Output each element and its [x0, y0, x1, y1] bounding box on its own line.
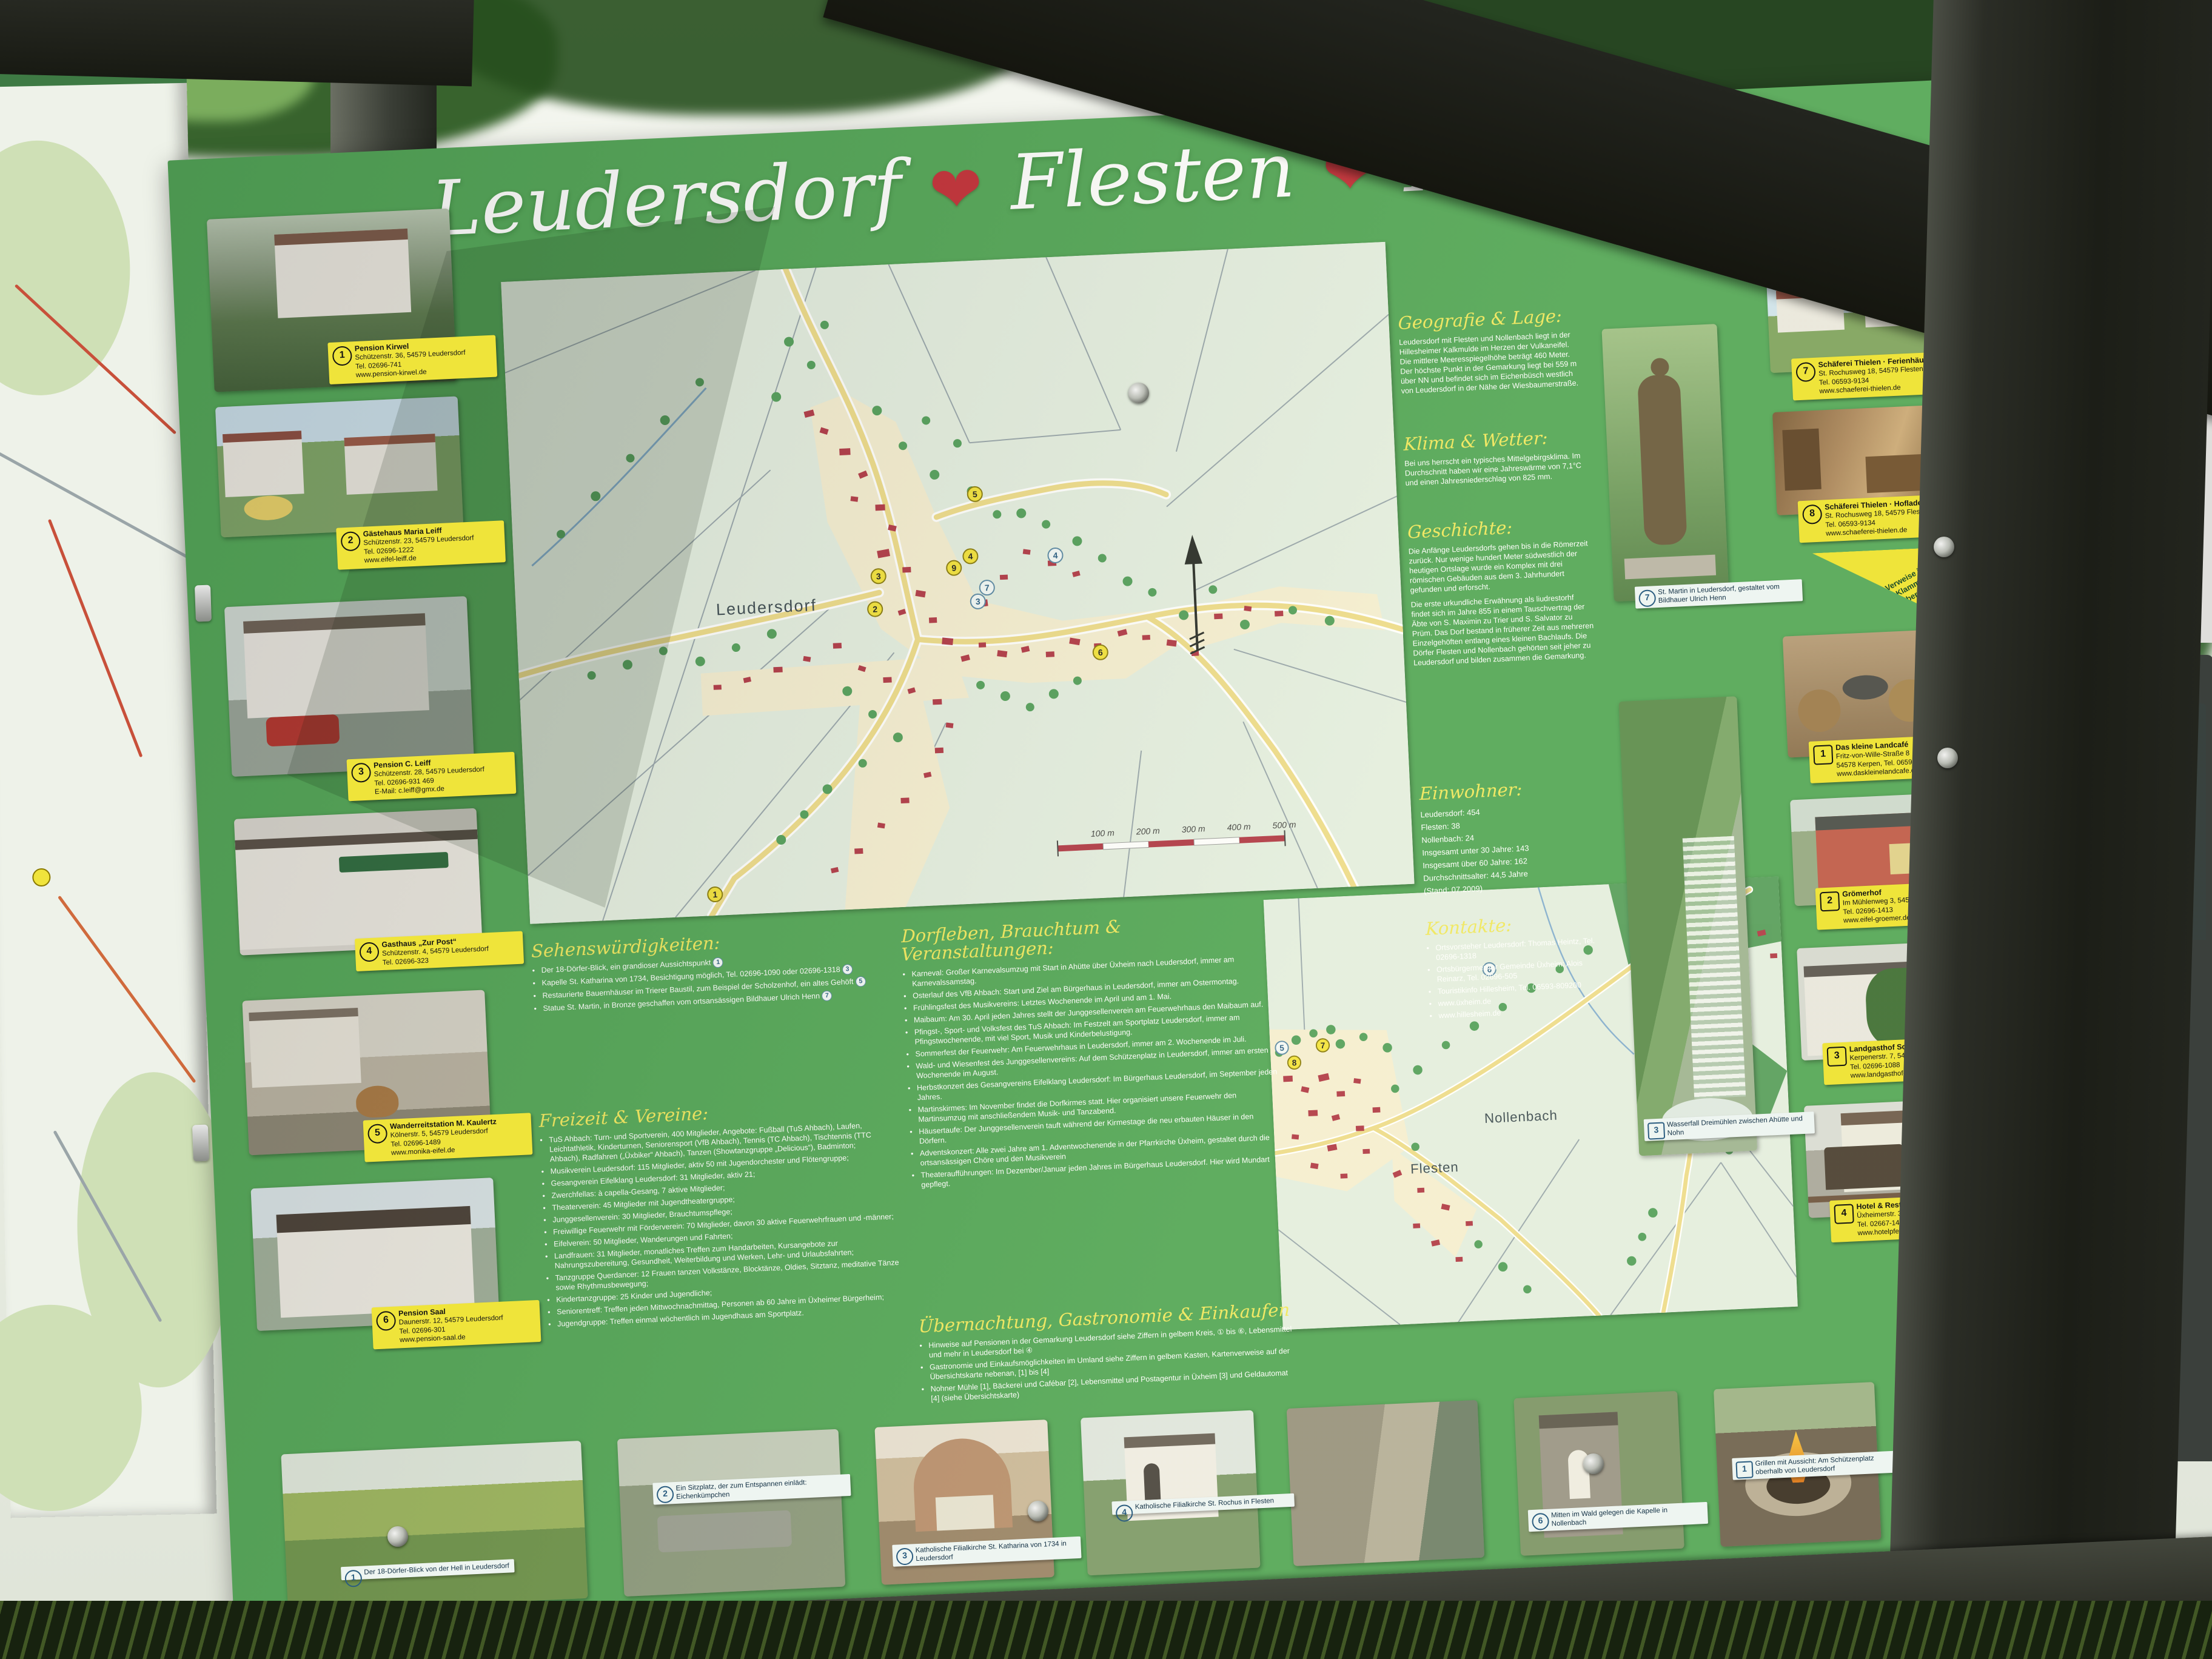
- house-shape: [274, 229, 411, 318]
- svg-text:300 m: 300 m: [1181, 823, 1205, 834]
- photo-gasthaus-zur-post: [234, 808, 483, 956]
- section-freizeit-vereine: Freizeit & Vereine: TuS Ahbach: Turn- un…: [538, 1096, 903, 1332]
- hedge-grass: [0, 1601, 2212, 1659]
- caption-number: 2: [656, 1486, 674, 1503]
- listing-number: 4: [359, 942, 379, 962]
- svg-text:400 m: 400 m: [1227, 822, 1251, 833]
- listing-label-6: 6 Pension Saal Daunerstr. 12, 54579 Leud…: [372, 1300, 541, 1349]
- statue-base-shape: [1624, 555, 1716, 580]
- section-dorfleben: Dorfleben, Brauchtum & Veranstaltungen: …: [900, 910, 1285, 1192]
- photo-wasserfall: [1618, 696, 1757, 1156]
- map-marker-yellow: 5: [967, 486, 982, 501]
- bolt: [1028, 1501, 1048, 1521]
- listing-label-3: 3 Pension C. Leiff Schützenstr. 28, 5457…: [347, 752, 517, 801]
- info-board: Leudersdorf ❤ Flesten ❤ Nollenbach: [167, 78, 2063, 1632]
- map-marker-yellow: 9: [947, 560, 962, 575]
- svg-text:5: 5: [973, 489, 978, 499]
- svg-text:7: 7: [985, 583, 990, 592]
- listing-label-1: 1 Pension Kirwel Schützenstr. 36, 54579 …: [327, 335, 497, 384]
- altar-shape: [936, 1495, 994, 1530]
- listing-number: 1: [1813, 745, 1833, 765]
- caption-text: Ein Sitzplatz, der zum Entspannen einläd…: [675, 1479, 806, 1501]
- svg-text:6: 6: [1098, 648, 1104, 657]
- caption-number: 7: [1638, 589, 1656, 607]
- trough-shape: [657, 1510, 792, 1552]
- map-marker-yellow: 4: [963, 549, 978, 564]
- section-title: Einwohner:: [1419, 777, 1601, 803]
- listing-number: 2: [1820, 891, 1840, 911]
- bolt: [1583, 1453, 1604, 1474]
- section-einwohner: Einwohner: Leudersdorf: 454 Flesten: 38 …: [1419, 777, 1606, 898]
- heart-icon: ❤: [928, 152, 984, 228]
- map-marker-blue: 4: [1048, 548, 1063, 563]
- caption-text: Katholische Filialkirche St. Katharina v…: [915, 1540, 1067, 1563]
- section-title: Geschichte:: [1407, 515, 1589, 541]
- listing-label-5: 5 Wanderreitstation M. Kaulertz Kölnerst…: [363, 1113, 533, 1162]
- svg-text:2: 2: [873, 604, 878, 614]
- panel-map-road-red: [48, 519, 143, 757]
- inn-building-shape: [235, 829, 482, 950]
- panel-map-road-gray: [0, 448, 194, 561]
- bolt: [387, 1526, 408, 1547]
- title-word-leudersdorf: Leudersdorf: [429, 144, 903, 253]
- map-marker-yellow: 6: [1093, 645, 1108, 660]
- caption-number: 6: [1532, 1513, 1549, 1530]
- garden-table-shape: [244, 495, 293, 521]
- red-car-shape: [266, 714, 340, 746]
- svg-text:5: 5: [1279, 1044, 1285, 1053]
- caption-text: St. Martin in Leudersdorf, gestaltet vom…: [1658, 583, 1780, 605]
- caption-text: Grillen mit Aussicht: Am Schützenplatz o…: [1755, 1455, 1874, 1476]
- listing-label-4: 4 Gasthaus „Zur Post“ Schützenstr. 4, 54…: [355, 931, 524, 972]
- listing-number: 3: [351, 763, 371, 783]
- section-body: Bei uns herrscht ein typisches Mittelgeb…: [1404, 451, 1587, 489]
- section-body: Leudersdorf mit Flesten und Nollenbach l…: [1399, 330, 1583, 397]
- listing-number: 2: [341, 531, 361, 551]
- listing-number: 8: [1802, 504, 1822, 525]
- map-marker-yellow: 1: [708, 887, 723, 902]
- panel-map-green-area: [0, 139, 133, 397]
- frame-post-right: [1886, 0, 2212, 1659]
- counter-shape: [1865, 454, 1925, 493]
- wicker-chair-shape: [1797, 689, 1842, 733]
- table-shape: [1842, 674, 1889, 700]
- svg-text:3: 3: [876, 571, 881, 581]
- svg-text:7: 7: [1320, 1041, 1325, 1050]
- section-geografie: Geografie & Lage: Leudersdorf mit Fleste…: [1398, 306, 1583, 401]
- map-marker-blue: 3: [970, 594, 985, 609]
- section-sehenswuerdigkeiten: Sehenswürdigkeiten: Der 18-Dörfer-Blick,…: [531, 926, 889, 1017]
- section-body: Die Anfänge Leudersdorfs gehen bis in di…: [1408, 538, 1592, 595]
- svg-text:4: 4: [968, 551, 973, 561]
- statue-shape: [1637, 374, 1687, 546]
- svg-text:9: 9: [951, 563, 957, 572]
- panel-map-marker: [32, 868, 51, 887]
- section-klima: Klima & Wetter: Bei uns herrscht ein typ…: [1403, 427, 1587, 493]
- map-ref-badge: 3: [842, 964, 853, 975]
- house-shape: [243, 613, 429, 718]
- bolt: [1128, 383, 1149, 403]
- listing-number: 3: [1827, 1047, 1847, 1067]
- section-uebernachtung: Übernachtung, Gastronomie & Einkaufen Hi…: [918, 1301, 1295, 1407]
- statue-head-shape: [1651, 358, 1669, 377]
- listing-number: 5: [367, 1124, 387, 1144]
- listing-number: 7: [1795, 362, 1815, 382]
- svg-text:500 m: 500 m: [1272, 819, 1296, 830]
- title-word-flesten: Flesten: [1008, 127, 1297, 227]
- section-title: Geografie & Lage:: [1398, 306, 1580, 332]
- house-shape: [223, 431, 304, 497]
- photo-pension-c-leiff: [224, 596, 474, 777]
- caption-number: 1: [1735, 1461, 1753, 1478]
- pavilion-shape: [1824, 1144, 1905, 1190]
- village-map: Leudersdorf 2 3 9 4 5 1 6 7 3 4: [501, 242, 1415, 924]
- section-geschichte: Geschichte: Die Anfänge Leudersdorfs geh…: [1407, 515, 1596, 673]
- map-marker-yellow: 2: [868, 602, 883, 617]
- map-marker-blue: 7: [979, 580, 994, 595]
- caption-text: Mitten im Wald gelegen die Kapelle in No…: [1551, 1507, 1667, 1528]
- photo-gaestehaus-leiff: [215, 396, 463, 537]
- svg-text:8: 8: [1292, 1058, 1297, 1067]
- barn-shape: [249, 1008, 361, 1088]
- svg-text:200 m: 200 m: [1135, 826, 1160, 837]
- bolt: [1934, 537, 1954, 557]
- inset-label-flesten: Flesten: [1410, 1159, 1460, 1177]
- panel-clip: [195, 585, 212, 622]
- map-marker-yellow: 3: [871, 569, 886, 584]
- svg-text:3: 3: [976, 597, 981, 606]
- collie-dog-shape: [355, 1085, 399, 1118]
- section-kontakte: Kontakte: Ortsvorsteher Leudersdorf: Tho…: [1425, 911, 1614, 1024]
- photo-scene: Leudersdorf ❤ Flesten ❤ Nollenbach: [0, 0, 2212, 1659]
- map-ref-badge: 5: [856, 976, 866, 987]
- map-ref-badge: 7: [822, 991, 833, 1002]
- section-body: Die erste urkundliche Erwähnung als liud…: [1410, 592, 1595, 668]
- listing-label-2: 2 Gästehaus Maria Leiff Schützenstr. 23,…: [336, 520, 506, 569]
- house-shape: [344, 434, 437, 495]
- shelf-shape: [1782, 429, 1821, 491]
- caption-text: Wasserfall Dreimühlen zwischen Ahütte un…: [1667, 1115, 1803, 1137]
- listing-number: 6: [376, 1311, 396, 1331]
- inset-marker-yellow: 7: [1316, 1039, 1329, 1052]
- chapel-door-shape: [1144, 1463, 1161, 1500]
- photo-st-rochus: [1081, 1410, 1261, 1576]
- house-shape: [276, 1206, 474, 1318]
- frame-beam-top-left: [0, 0, 474, 86]
- waterfall-shape: [1683, 836, 1746, 1099]
- photo-doerferblick: [281, 1441, 588, 1612]
- caption-number: 3: [896, 1547, 914, 1565]
- photo-eichenkuempchen: [617, 1429, 845, 1597]
- panel-map-road-red: [58, 896, 196, 1084]
- panel-clip: [192, 1125, 209, 1162]
- map-ref-badge: 1: [712, 957, 723, 968]
- svg-text:1: 1: [712, 890, 718, 899]
- listing-number: 1: [332, 346, 352, 366]
- inset-marker-yellow: 8: [1287, 1056, 1301, 1069]
- svg-text:100 m: 100 m: [1091, 828, 1115, 839]
- caption-number: 3: [1647, 1122, 1665, 1139]
- photo-scholzenhof-weg: [1287, 1400, 1484, 1566]
- svg-text:4: 4: [1053, 551, 1058, 560]
- section-title: Klima & Wetter:: [1404, 427, 1586, 454]
- photo-st-martin-statue: [1601, 324, 1729, 602]
- bolt: [1937, 748, 1958, 768]
- listing-number: 4: [1834, 1204, 1854, 1224]
